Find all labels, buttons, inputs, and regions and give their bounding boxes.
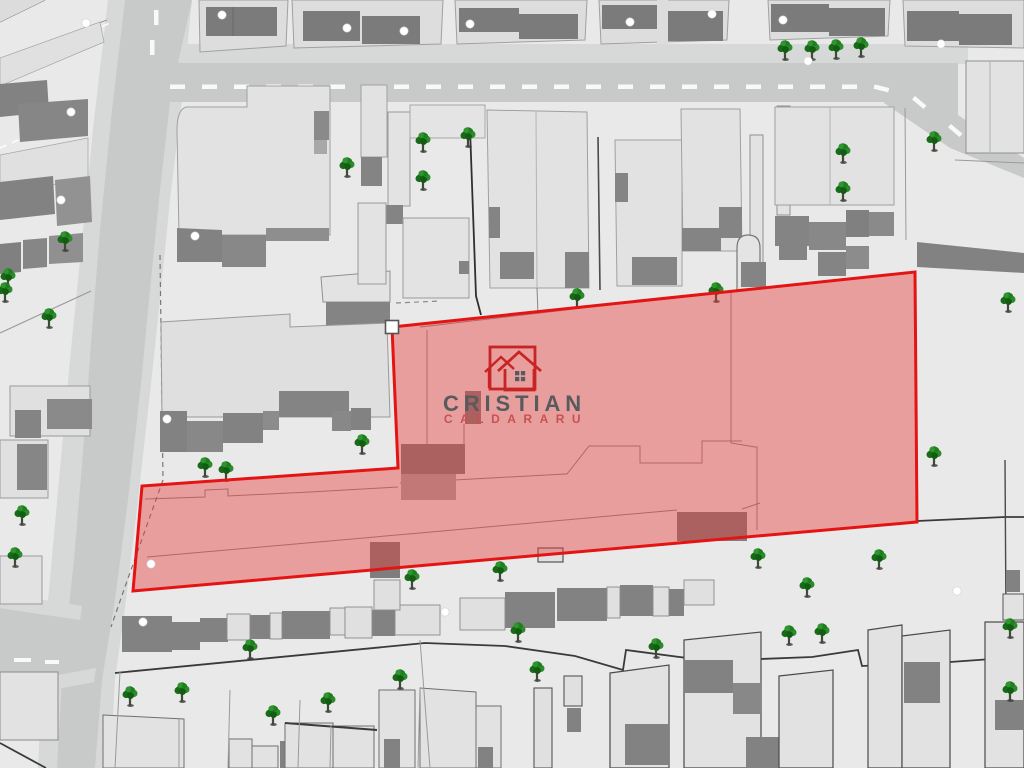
svg-text:CALDARARU: CALDARARU xyxy=(444,412,588,426)
